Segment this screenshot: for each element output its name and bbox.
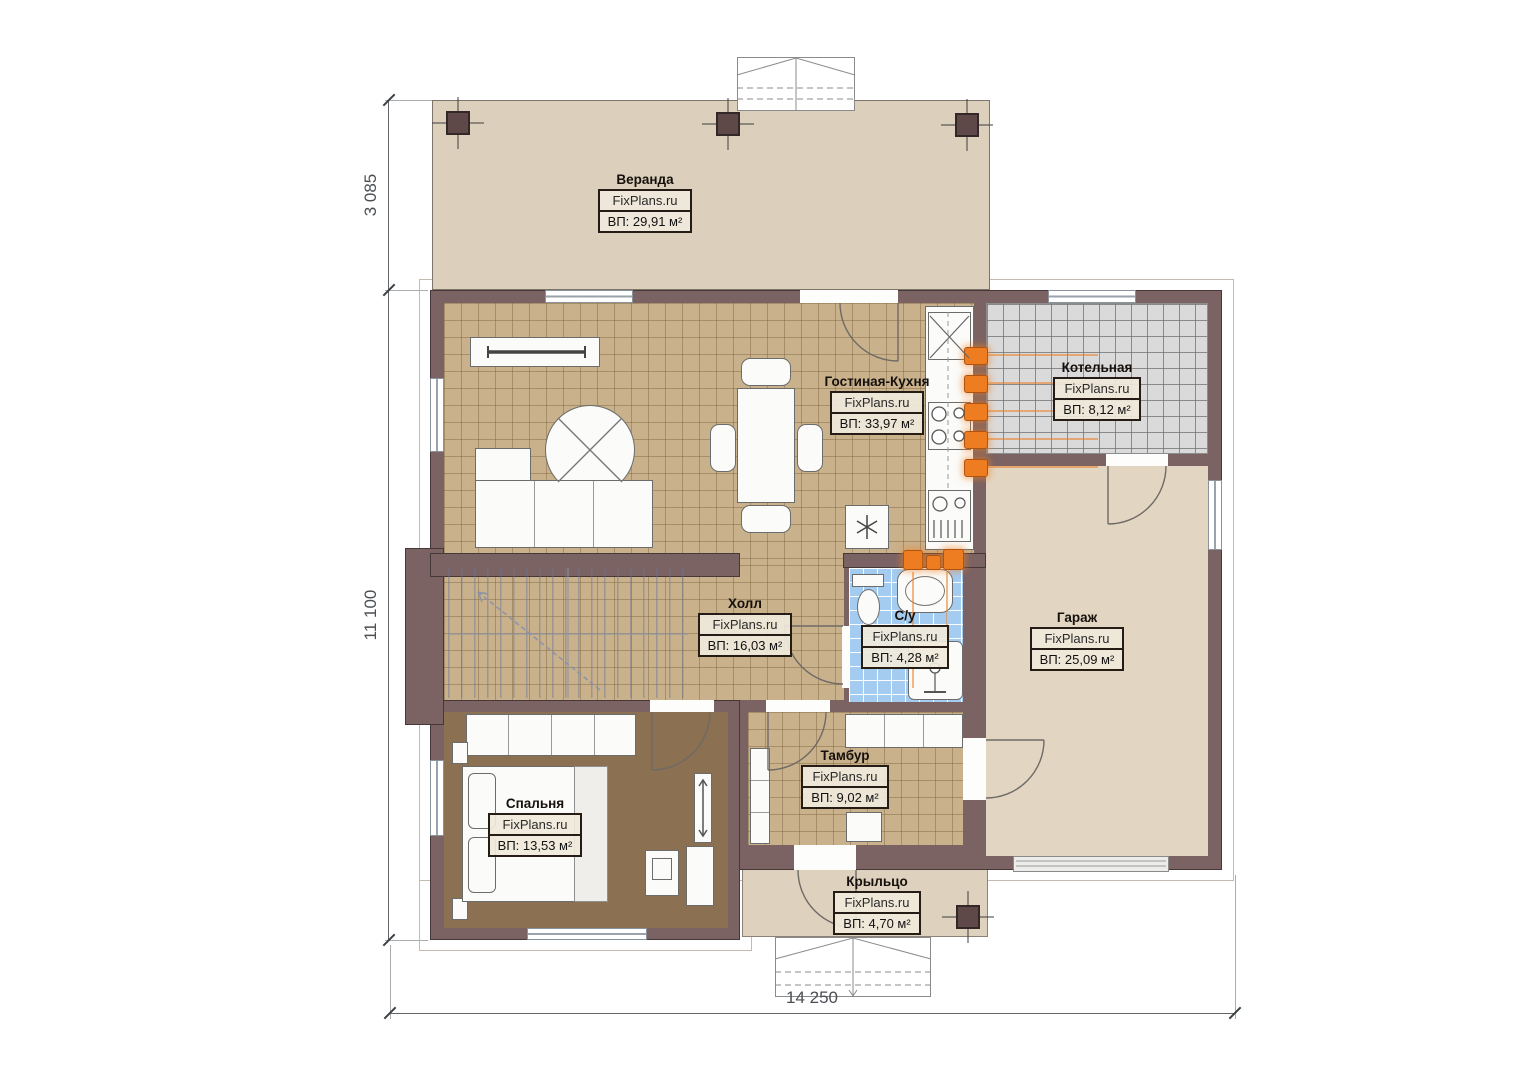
tambur-washer xyxy=(846,812,882,842)
veranda-steps xyxy=(737,57,855,111)
dimension-house-side: 11 100 xyxy=(361,575,379,655)
room-box: FixPlans.ru ВП: 4,70 м² xyxy=(833,891,920,935)
column-veranda-mid xyxy=(716,112,740,136)
bedroom-wardrobe xyxy=(466,714,636,756)
room-label-garage: Гараж FixPlans.ru ВП: 25,09 м² xyxy=(1007,610,1147,671)
room-box: FixPlans.ru ВП: 16,03 м² xyxy=(698,613,793,657)
dining-table xyxy=(737,388,795,503)
door-opening-boiler-garage xyxy=(1106,454,1168,466)
window-boiler-top xyxy=(1048,290,1136,303)
window-garage-right xyxy=(1208,480,1222,550)
room-title: Гостиная-Кухня xyxy=(807,374,947,389)
door-opening-bedroom xyxy=(650,700,714,712)
watermark: FixPlans.ru xyxy=(700,615,791,636)
water-heater-3 xyxy=(943,549,964,570)
room-box: FixPlans.ru ВП: 9,02 м² xyxy=(801,765,888,809)
room-area: ВП: 16,03 м² xyxy=(700,636,791,655)
room-label-porch: Крыльцо FixPlans.ru ВП: 4,70 м² xyxy=(807,874,947,935)
room-title: Холл xyxy=(675,596,815,611)
watermark: FixPlans.ru xyxy=(803,767,886,788)
extension-line-low xyxy=(385,940,428,941)
window-bedroom-left xyxy=(430,760,444,836)
extension-line-br xyxy=(1235,875,1236,1019)
room-label-bathroom: С/у FixPlans.ru ВП: 4,28 м² xyxy=(835,608,975,669)
room-area: ВП: 8,12 м² xyxy=(1055,400,1138,419)
room-label-living-kitchen: Гостиная-Кухня FixPlans.ru ВП: 33,97 м² xyxy=(807,374,947,435)
radiator-2 xyxy=(964,375,988,393)
bedroom-cabinet xyxy=(686,846,714,906)
dimension-line-bottom xyxy=(390,1013,1235,1014)
room-area: ВП: 4,28 м² xyxy=(863,648,946,667)
bathroom-sink-basin xyxy=(905,576,945,606)
floor-plan: Веранда FixPlans.ru ВП: 29,91 м² Гостина… xyxy=(0,0,1528,1080)
door-opening-hall-tambur xyxy=(766,700,830,712)
door-opening-tambur-garage xyxy=(963,738,986,800)
room-label-tambur: Тамбур FixPlans.ru ВП: 9,02 м² xyxy=(775,748,915,809)
room-area: ВП: 29,91 м² xyxy=(600,212,691,231)
dining-chair-left xyxy=(710,424,736,472)
room-box: FixPlans.ru ВП: 33,97 м² xyxy=(830,391,925,435)
room-box: FixPlans.ru ВП: 25,09 м² xyxy=(1030,627,1125,671)
room-box: FixPlans.ru ВП: 4,28 м² xyxy=(861,625,948,669)
room-label-boiler: Котельная FixPlans.ru ВП: 8,12 м² xyxy=(1027,360,1167,421)
radiator-5 xyxy=(964,459,988,477)
column-veranda-right xyxy=(955,113,979,137)
mirror-cabinet xyxy=(694,773,712,843)
extension-line-top xyxy=(385,100,432,101)
water-heater-1 xyxy=(903,550,923,570)
room-label-veranda: Веранда FixPlans.ru ВП: 29,91 м² xyxy=(575,172,715,233)
sofa-chaise xyxy=(475,448,531,482)
watermark: FixPlans.ru xyxy=(835,893,918,914)
dining-chair-top xyxy=(741,358,791,386)
room-title: Спальня xyxy=(465,796,605,811)
toilet-tank xyxy=(852,574,884,587)
watermark: FixPlans.ru xyxy=(863,627,946,648)
room-title: Тамбур xyxy=(775,748,915,763)
column-porch-right xyxy=(956,905,980,929)
room-area: ВП: 33,97 м² xyxy=(832,414,923,433)
window-bedroom-bottom xyxy=(527,928,647,940)
staircase xyxy=(448,568,688,698)
radiator-3 xyxy=(964,403,988,421)
dimension-line-left xyxy=(388,100,389,940)
door-opening-veranda xyxy=(800,290,898,303)
nightstand-top xyxy=(452,742,468,764)
dimension-veranda-depth: 3 085 xyxy=(361,155,379,235)
watermark: FixPlans.ru xyxy=(832,393,923,414)
room-label-bedroom: Спальня FixPlans.ru ВП: 13,53 м² xyxy=(465,796,605,857)
room-area: ВП: 9,02 м² xyxy=(803,788,886,807)
watermark: FixPlans.ru xyxy=(490,815,581,836)
radiator-4 xyxy=(964,431,988,449)
room-title: Веранда xyxy=(575,172,715,187)
room-title: Крыльцо xyxy=(807,874,947,889)
kitchen-island xyxy=(845,505,889,549)
watermark: FixPlans.ru xyxy=(1032,629,1123,650)
room-title: Гараж xyxy=(1007,610,1147,625)
garage-gate xyxy=(1013,856,1169,872)
column-veranda-left xyxy=(446,111,470,135)
radiator-1 xyxy=(964,347,988,365)
room-area: ВП: 13,53 м² xyxy=(490,836,581,855)
tv-stand xyxy=(470,337,600,367)
room-box: FixPlans.ru ВП: 13,53 м² xyxy=(488,813,583,857)
water-heater-2 xyxy=(926,555,941,570)
room-title: С/у xyxy=(835,608,975,623)
watermark: FixPlans.ru xyxy=(600,191,691,212)
tambur-wardrobe-left xyxy=(750,748,770,844)
door-opening-tambur-porch xyxy=(794,845,856,870)
room-area: ВП: 25,09 м² xyxy=(1032,650,1123,669)
sofa xyxy=(475,480,653,548)
room-box: FixPlans.ru ВП: 8,12 м² xyxy=(1053,377,1140,421)
watermark: FixPlans.ru xyxy=(1055,379,1138,400)
kitchen-sink xyxy=(928,490,971,542)
room-title: Котельная xyxy=(1027,360,1167,375)
dining-chair-bottom xyxy=(741,505,791,533)
window-living-top xyxy=(545,290,633,303)
dimension-house-front: 14 250 xyxy=(752,988,872,1008)
room-label-hall: Холл FixPlans.ru ВП: 16,03 м² xyxy=(675,596,815,657)
bedroom-chair xyxy=(652,858,672,880)
extension-line-mid xyxy=(385,290,428,291)
room-area: ВП: 4,70 м² xyxy=(835,914,918,933)
window-living-left xyxy=(430,378,444,452)
extension-line-bl xyxy=(390,945,391,1019)
tambur-wardrobe-top xyxy=(845,714,963,748)
room-box: FixPlans.ru ВП: 29,91 м² xyxy=(598,189,693,233)
